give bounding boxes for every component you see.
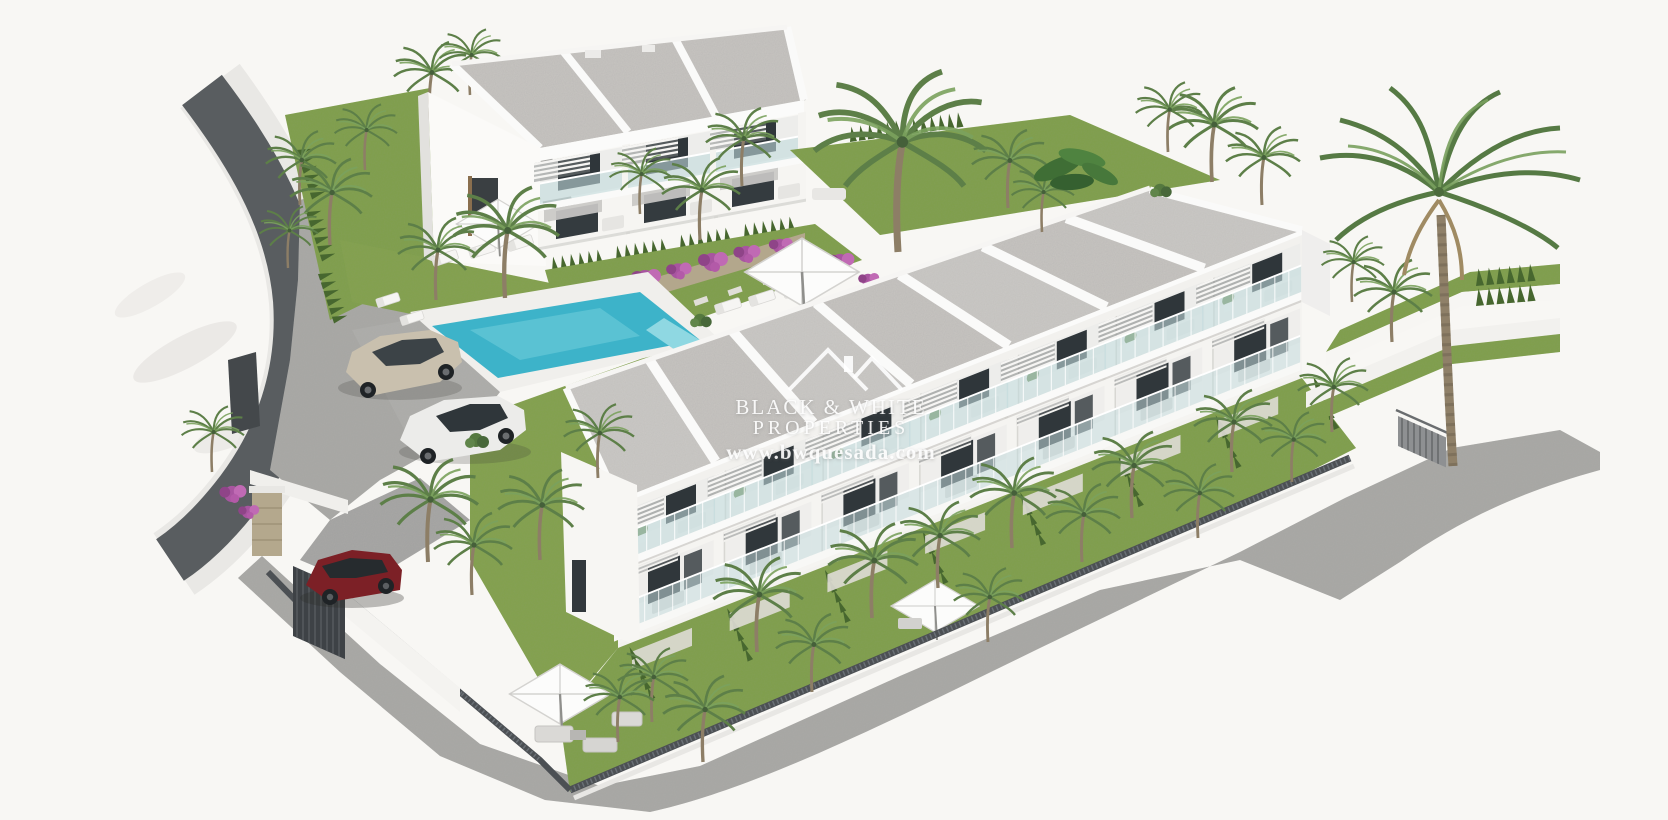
end-window — [572, 560, 586, 612]
rooftop-unit — [642, 45, 655, 52]
garden-bench — [812, 188, 846, 200]
scene-svg — [0, 0, 1668, 820]
render-canvas: BLACK & WHITE PROPERTIES www.bwquesada.c… — [0, 0, 1668, 820]
road-sign-slab — [228, 352, 260, 434]
garden-chairs — [898, 618, 922, 629]
row-end-wall-right — [1302, 230, 1330, 316]
pillar-cap — [249, 486, 285, 493]
rooftop-unit — [585, 50, 601, 58]
